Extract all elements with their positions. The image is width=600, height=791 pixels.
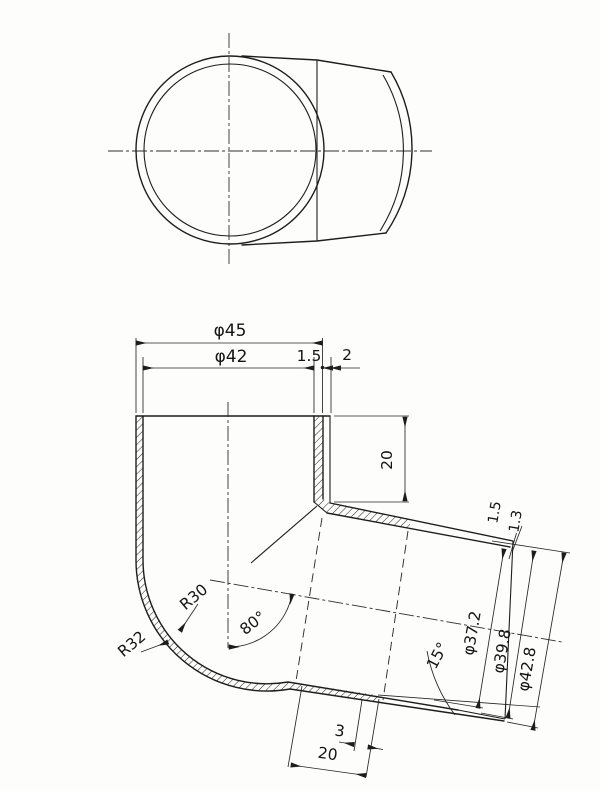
outer-rim-circle [136,56,324,244]
socket-depth-label: 20 [378,450,396,470]
dim-inner-diameter: φ42 [143,347,314,413]
right-wall-hatch [314,416,410,529]
branch-top-inner [327,513,510,547]
dimensions: φ45 φ42 1.5 2 [114,321,570,777]
section-outline [136,416,513,721]
tip-angle-label: 15° [423,639,452,672]
dim-step-top: 2 [331,346,361,413]
dim-branch-diameters: φ37.2 φ39.8 φ42.8 [434,541,570,730]
bend-transition-line-right [383,531,408,700]
outer-radius-label: R32 [114,627,149,660]
dim-socket-depth: 20 [334,416,409,502]
step-label: 2 [342,346,352,364]
socket-outer-arc [386,72,412,233]
top-view [108,33,432,267]
dim-bend-angle: 80° [229,594,292,647]
body-bottom-edge [242,233,386,245]
inner-diameter-label: φ42 [215,347,248,367]
bend-angle-label: 80° [237,608,270,639]
pipe-elbow-drawing: φ45 φ42 1.5 2 [0,0,600,791]
left-wall-hatch [136,416,380,703]
corner-intersection-line [251,506,317,563]
branch-bore-diameter-label: φ37.2 [459,610,484,657]
tip-section-length-label: 20 [317,744,339,765]
dim-wall-thickness-top: 1.5 [297,347,333,371]
section-view: φ45 φ42 1.5 2 [114,321,570,777]
tip-chamfer-length-label: 3 [334,721,346,740]
dim-outer-diameter: φ45 [136,321,323,413]
socket-body-outline [242,56,412,245]
dim-bend-radii: R30 R32 [114,580,211,660]
inner-bore-circle [144,64,316,236]
wall-thickness-label: 1.5 [297,347,322,365]
dim-branch-wall: 1.5 1.3 [485,500,526,559]
bend-transition-line-left [296,518,322,681]
branch-wall-label: 1.5 [485,500,505,525]
drawing-sheet: φ45 φ42 1.5 2 [0,0,600,791]
inner-radius-label: R30 [176,580,211,613]
branch-mid-diameter-label: φ39.8 [489,628,514,675]
branch-tip-wall-label: 1.3 [506,509,526,534]
outer-diameter-label: φ45 [214,321,247,341]
